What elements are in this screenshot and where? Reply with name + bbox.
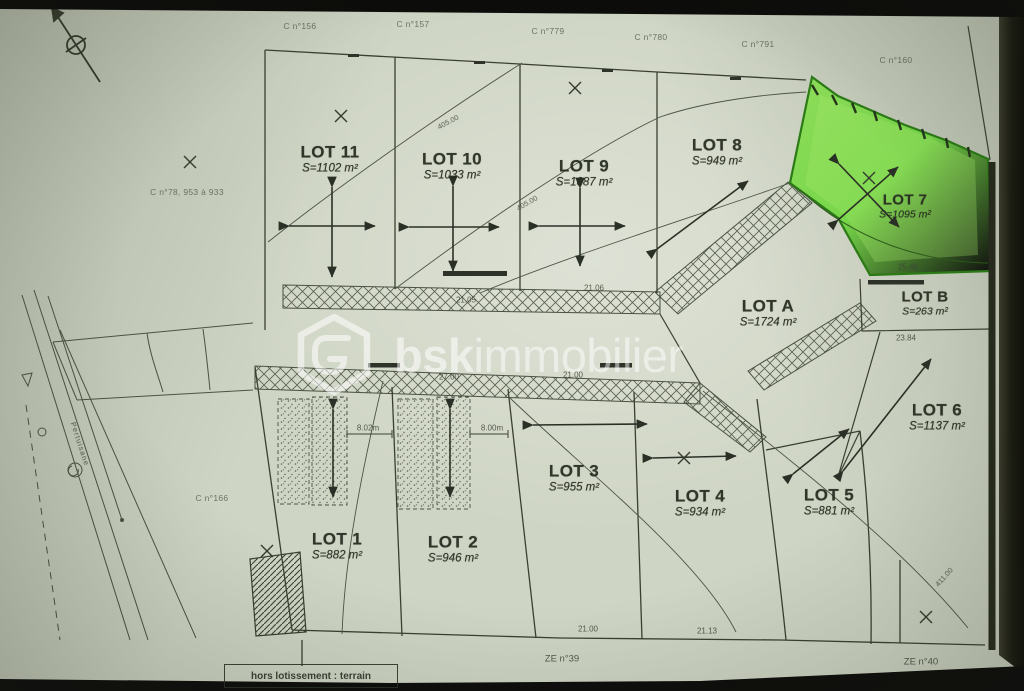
parcel-label: C n°157 <box>397 19 430 29</box>
lot3-label: LOT 3 S=955 m² <box>549 462 599 495</box>
dimension-label: 23.84 <box>896 334 916 343</box>
lot5-label: LOT 5 S=881 m² <box>804 486 854 519</box>
dimension-label: 27.00 <box>439 373 459 382</box>
road-lines <box>22 290 253 640</box>
dimension-label: 8.02m <box>357 424 379 433</box>
parcel-label: C n°791 <box>742 39 775 49</box>
lot11-label: LOT 11 S=1102 m² <box>300 143 359 176</box>
lot2-label: LOT 2 S=946 m² <box>428 533 478 566</box>
lot8-label: LOT 8 S=949 m² <box>692 136 742 169</box>
lot6-label: LOT 6 S=1137 m² <box>909 401 965 434</box>
lot4-label: LOT 4 S=934 m² <box>675 487 725 520</box>
plan-linework <box>0 0 1024 691</box>
survey-plan-scan: bskimmobilier LOT 11 S=1102 m² LOT 10 S=… <box>0 0 1024 691</box>
green-lot7-shape <box>790 77 991 275</box>
lot7-label: LOT 7 S=1095 m² <box>879 191 931 220</box>
dimension-label: 21.13 <box>697 627 717 636</box>
parcel-label: C n°156 <box>284 21 317 31</box>
north-arrow-icon <box>52 8 100 82</box>
lot1-label: LOT 1 S=882 m² <box>312 530 362 563</box>
lot9-label: LOT 9 S=1087 m² <box>556 157 613 190</box>
dimension-label: 21.06 <box>584 284 604 293</box>
lot10-label: LOT 10 S=1033 m² <box>422 150 482 183</box>
parcel-label: C n°780 <box>635 32 668 42</box>
dimension-label: 8.00m <box>481 424 503 433</box>
lotA-label: LOT A S=1724 m² <box>740 297 797 330</box>
dimension-label: 21.00 <box>563 371 583 380</box>
lower-lots-outline <box>255 367 985 666</box>
hors-lotissement-shape <box>250 552 306 636</box>
parcel-label: C n°779 <box>532 26 565 36</box>
zone-label-ze40: ZE n°40 <box>904 657 938 668</box>
parcel-label: C n°160 <box>880 55 913 65</box>
parcel-label: C n°166 <box>196 493 229 503</box>
dimension-label: 21.00 <box>578 625 598 634</box>
parcel-label: C n°78, 953 à 933 <box>150 187 224 197</box>
zone-label-ze39: ZE n°39 <box>545 654 579 665</box>
lotB-label: LOT B S=263 m² <box>902 288 949 317</box>
stipple-blocks <box>278 397 470 509</box>
dimension-label: 25.48 <box>898 263 918 272</box>
note-text: hors lotissement : terrain <box>251 671 371 682</box>
dimension-label: 21.05 <box>456 296 476 305</box>
hors-lotissement-note: hors lotissement : terrain <box>224 664 398 688</box>
